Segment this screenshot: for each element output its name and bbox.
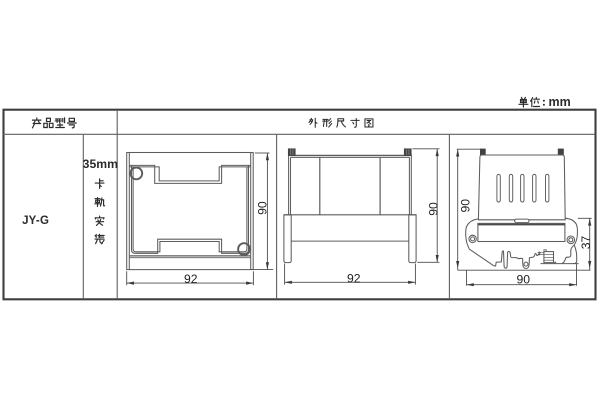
svg-text:90: 90 (517, 272, 531, 286)
svg-text:35mm: 35mm (83, 157, 118, 171)
svg-text:JY-G: JY-G (22, 215, 49, 227)
svg-text:37: 37 (579, 236, 593, 250)
svg-text:92: 92 (347, 272, 361, 286)
svg-text:92: 92 (184, 272, 198, 286)
svg-text:90: 90 (427, 202, 441, 216)
svg-text:mm: mm (549, 95, 571, 109)
svg-text:90: 90 (256, 201, 270, 215)
svg-text:90: 90 (458, 199, 472, 213)
